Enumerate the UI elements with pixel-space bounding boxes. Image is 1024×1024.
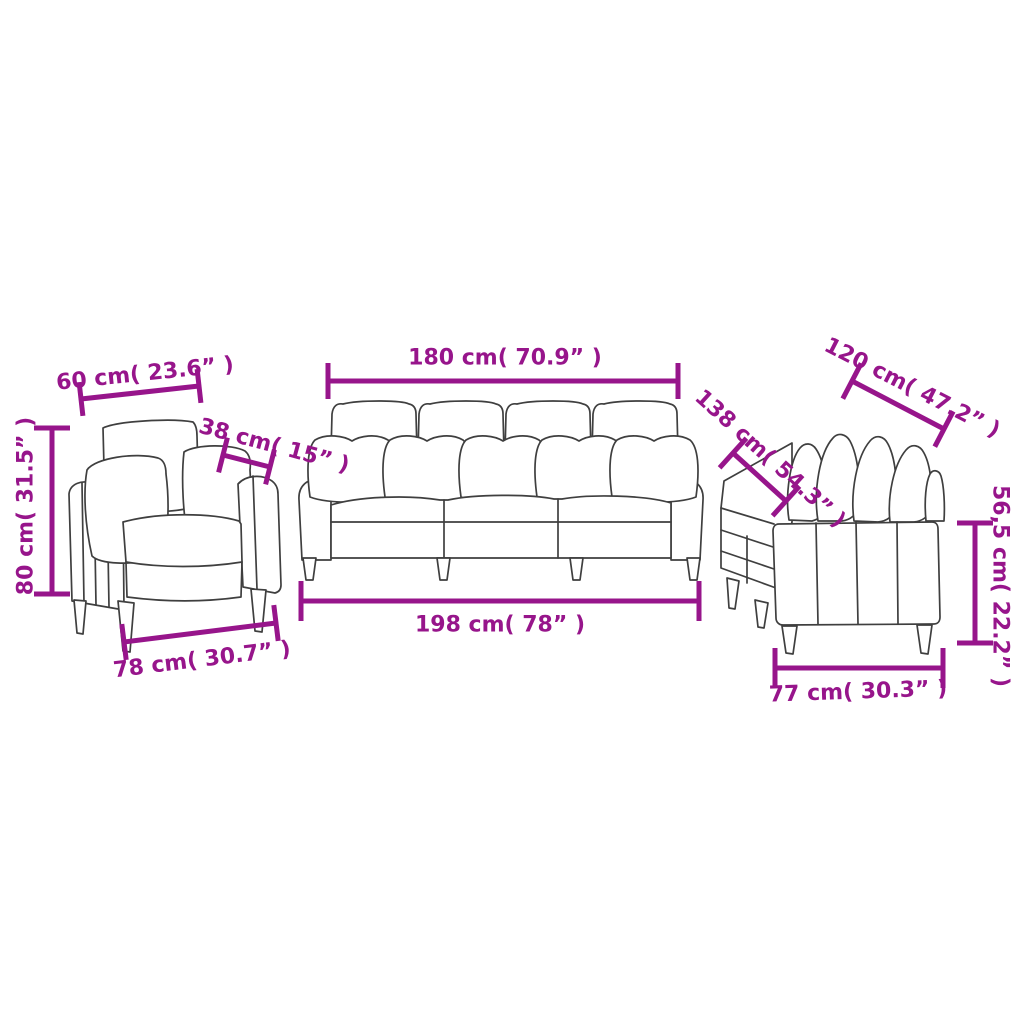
armchair-leg	[74, 600, 86, 634]
armchair-drawing	[69, 420, 281, 652]
loveseat-leg	[727, 578, 739, 609]
sofa-leg	[570, 558, 583, 580]
sofa-pillow	[383, 436, 471, 502]
armchair-base	[126, 562, 242, 601]
armchair-left-dimension	[34, 428, 70, 594]
dim-line	[124, 623, 276, 642]
three-seater-top-dimension-label: 180 cm( 70.9” )	[408, 346, 602, 371]
dim-tick	[274, 605, 278, 641]
armchair-right-arm	[238, 476, 281, 593]
armchair-seat-cushion	[123, 515, 242, 567]
armchair-left-dimension-label: 80 cm( 31.5” )	[14, 417, 39, 595]
loveseat-leg	[782, 626, 797, 654]
two-seater-drawing	[721, 434, 944, 654]
sofa-pillow	[459, 436, 547, 502]
sofa-pillow	[610, 436, 698, 502]
sofa-leg	[303, 558, 316, 580]
three-seater-bottom-dimension-label: 198 cm( 78” )	[415, 613, 585, 638]
loveseat-arm-seam	[897, 522, 898, 624]
two-seater-right-dimension-label: 56,5 cm( 22.2” )	[988, 485, 1013, 687]
loveseat-leg	[755, 600, 768, 628]
furniture-line-art	[0, 0, 1024, 1024]
dimension-diagram: 60 cm( 23.6” ) 38 cm( 15” ) 80 cm( 31.5”…	[0, 0, 1024, 1024]
three-seater-drawing	[299, 401, 703, 580]
sofa-leg	[437, 558, 450, 580]
loveseat-leg	[917, 625, 932, 654]
sofa-seat-deck	[331, 495, 671, 558]
loveseat-back-corner	[925, 471, 944, 521]
sofa-leg	[687, 558, 700, 580]
